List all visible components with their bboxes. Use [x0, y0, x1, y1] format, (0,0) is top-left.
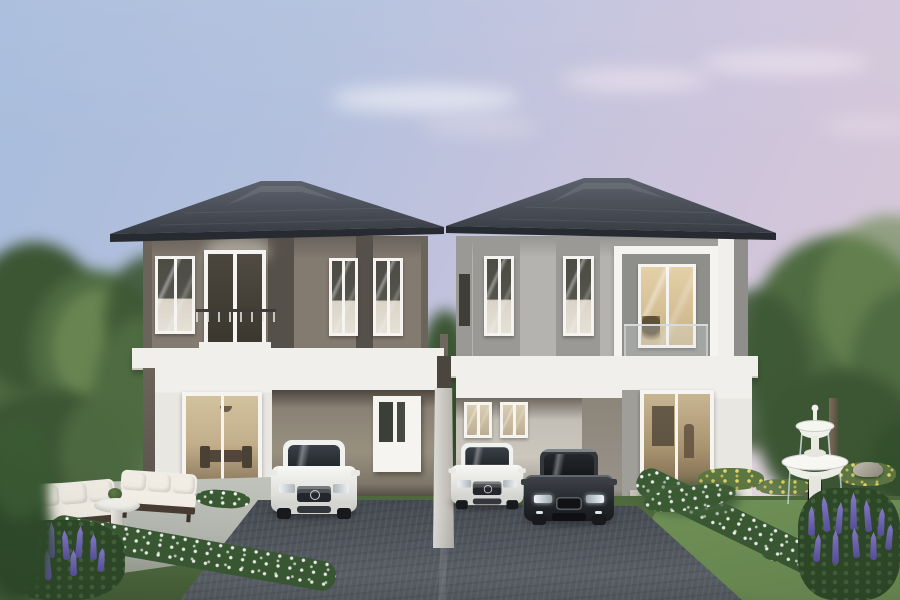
- car-headlight: [333, 484, 349, 493]
- sofa-pillow: [60, 483, 88, 505]
- car-wheel: [532, 515, 546, 525]
- bumper-intake: [552, 513, 586, 521]
- car-mirror: [448, 468, 456, 473]
- car-wheel: [592, 515, 606, 525]
- car-headlight: [534, 495, 552, 503]
- car-windshield: [544, 454, 594, 477]
- sofa-pillow: [122, 472, 146, 492]
- car-grille: [297, 486, 331, 502]
- car-wheel: [506, 500, 518, 509]
- car-mirror: [608, 479, 617, 485]
- white-suv-right: [451, 443, 523, 510]
- car-headlight: [586, 495, 604, 503]
- sofa-pillow: [147, 473, 171, 493]
- white-suv-left: [271, 440, 357, 520]
- sofa-pillow: [172, 475, 195, 494]
- fog-light: [536, 511, 543, 514]
- kidney-grille: [556, 497, 582, 510]
- car-mirror: [268, 470, 277, 476]
- dark-sedan: [524, 447, 614, 525]
- car-headlight: [279, 484, 295, 493]
- car-wheel: [337, 508, 351, 519]
- duplex-house-rendering: [0, 0, 900, 600]
- bumper-intake: [297, 506, 331, 513]
- car-grille: [473, 482, 502, 495]
- car-headlight: [458, 480, 471, 488]
- car-mirror: [351, 470, 360, 476]
- grille-emblem: [310, 490, 320, 500]
- sofa-leg: [186, 514, 191, 522]
- leaf-bed: [798, 488, 900, 600]
- car-wheel: [456, 500, 468, 509]
- grille-emblem: [484, 485, 492, 493]
- car-headlight: [503, 480, 516, 488]
- car-wheel: [277, 508, 291, 519]
- bumper-intake: [473, 498, 502, 504]
- fog-light: [595, 511, 602, 514]
- car-mirror: [521, 479, 530, 485]
